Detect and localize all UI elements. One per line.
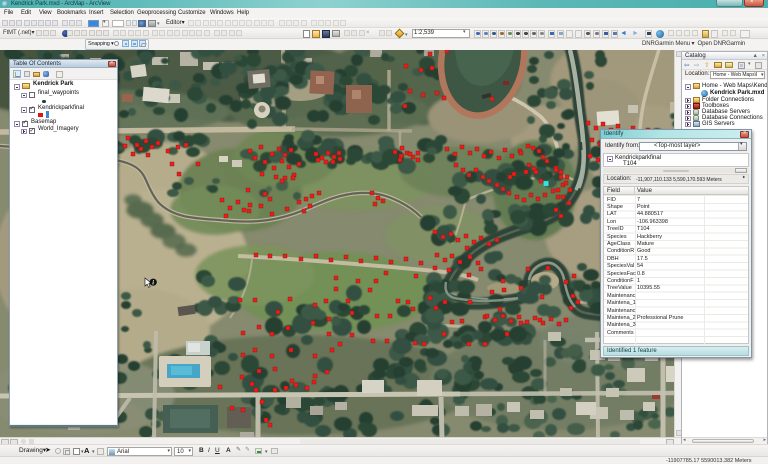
svg-text:i: i — [152, 279, 154, 286]
